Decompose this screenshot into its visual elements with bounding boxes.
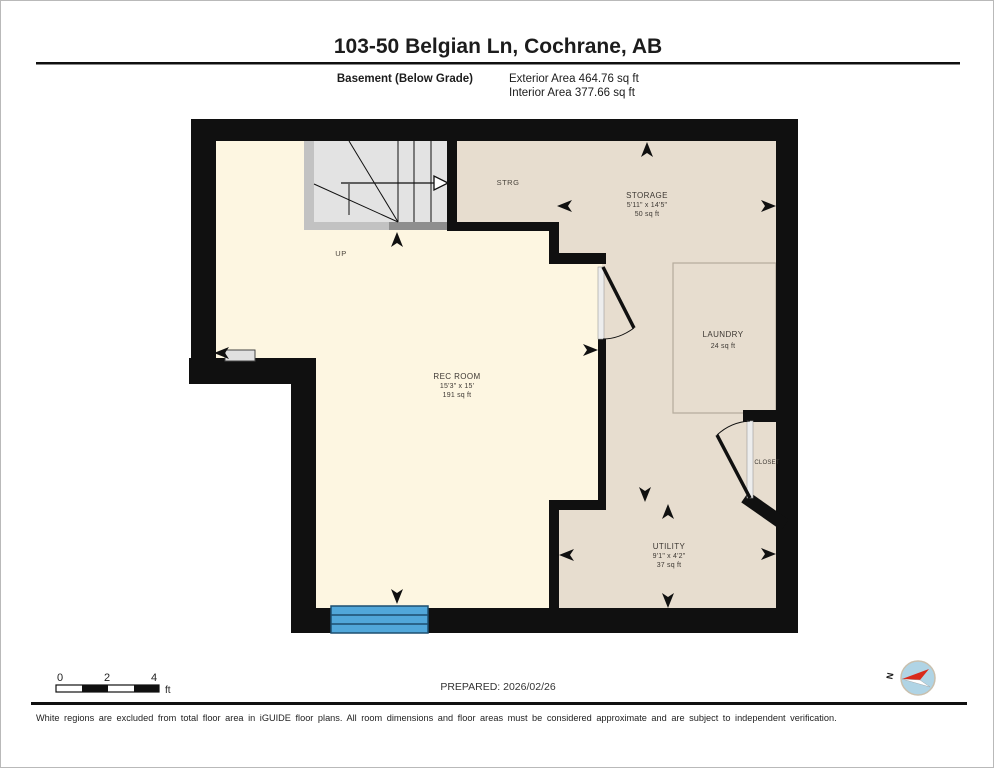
wall-utility-left [549,510,559,608]
page-title: 103-50 Belgian Ln, Cochrane, AB [334,35,662,58]
wall-top [191,119,798,141]
staircase [304,141,448,230]
scale-bar-segment [134,685,159,692]
svg-text:REC ROOM: REC ROOM [433,372,480,381]
svg-text:191 sq ft: 191 sq ft [443,392,472,399]
stair-field [314,141,447,222]
wall-closet-top [743,410,778,422]
wall-recroom-top [447,222,559,231]
svg-text:9'1" x 4'2": 9'1" x 4'2" [653,553,686,560]
svg-text:37 sq ft: 37 sq ft [657,562,682,569]
compass-north-label: N [884,672,895,680]
svg-text:15'3" x 15': 15'3" x 15' [440,383,474,390]
wall-left-step [189,358,316,384]
scale-unit-label: ft [165,685,171,696]
door-jamb [747,421,753,498]
wall-left-lower [291,384,316,633]
room-utility-label: UTILITY 9'1" x 4'2" 37 sq ft [653,542,686,569]
room-closet-label: CLOSET [754,460,779,466]
floor-label: Basement (Below Grade) [337,73,473,85]
floorplan-canvas: 103-50 Belgian Ln, Cochrane, AB Basement… [1,1,994,768]
window-basement-egress [331,606,428,633]
interior-area: Interior Area 377.66 sq ft [509,87,636,99]
window-left-step [225,350,255,361]
svg-text:UTILITY: UTILITY [653,542,686,551]
scale-tick-2: 2 [104,672,110,684]
door-jamb [598,267,604,339]
scale-tick-4: 4 [151,672,157,684]
svg-text:50 sq ft: 50 sq ft [635,211,660,218]
svg-text:LAUNDRY: LAUNDRY [703,330,744,339]
stair-bottom-strip [304,222,389,230]
footer-rule [31,702,967,705]
svg-text:24 sq ft: 24 sq ft [711,343,736,350]
stairs-up-label: UP [335,249,346,258]
wall-recroom-right [598,339,606,504]
stair-stringer [304,141,314,230]
wall-door-head [549,253,606,264]
scale-tick-0: 0 [57,672,63,684]
room-strg-label: STRG [497,178,520,187]
floorplan-page: 103-50 Belgian Ln, Cochrane, AB Basement… [0,0,994,768]
scale-bar-segment [82,685,108,692]
wall-left-upper [191,119,216,384]
floor-plan: UP STRG STORAGE 5'11" x 14'5" 50 sq ft L… [189,119,798,633]
wall-right [776,119,798,633]
disclaimer-text: White regions are excluded from total fl… [36,713,837,723]
exterior-area: Exterior Area 464.76 sq ft [509,73,640,85]
prepared-date: PREPARED: 2026/02/26 [440,681,556,693]
scale-bar: 0 2 4 ft [56,672,171,696]
title-underline [36,62,960,65]
compass-icon: N [884,661,935,695]
stair-threshold [389,222,447,230]
wall-stairs-storage [447,141,457,223]
svg-text:STORAGE: STORAGE [626,191,668,200]
wall-utility-top [549,500,606,510]
svg-text:5'11" x 14'5": 5'11" x 14'5" [627,202,668,209]
